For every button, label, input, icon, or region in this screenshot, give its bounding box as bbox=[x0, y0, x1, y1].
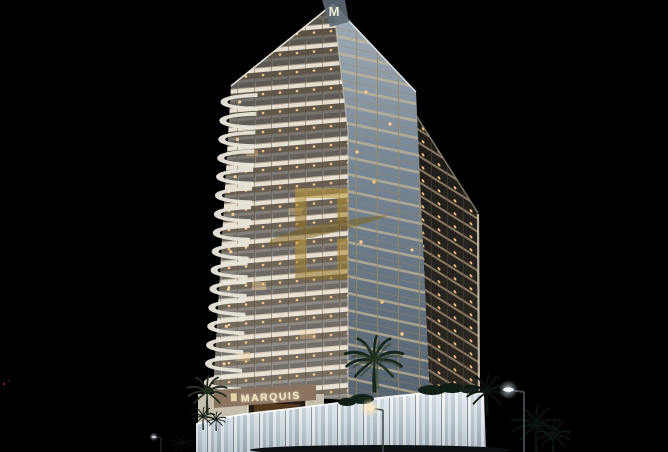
balcony-ceiling-light bbox=[236, 138, 239, 141]
balcony-ceiling-light bbox=[231, 213, 234, 216]
wing-right-edge-highlight bbox=[478, 214, 479, 393]
balcony-ceiling-light bbox=[225, 325, 228, 328]
balcony-ceiling-light bbox=[222, 362, 225, 365]
balcony-ceiling-light bbox=[229, 250, 232, 253]
balcony-ceiling-light bbox=[227, 287, 230, 290]
render-scene: M MARQUIS MARQUIS bbox=[0, 0, 668, 452]
entrance-lamp-glow bbox=[360, 398, 380, 418]
balcony-ceiling-light bbox=[234, 175, 237, 178]
sign-emblem-icon bbox=[231, 393, 237, 401]
apex-logo-letter: M bbox=[329, 4, 340, 19]
night-render-image: M MARQUIS MARQUIS bbox=[0, 0, 668, 452]
balcony-ceiling-light bbox=[238, 100, 241, 103]
